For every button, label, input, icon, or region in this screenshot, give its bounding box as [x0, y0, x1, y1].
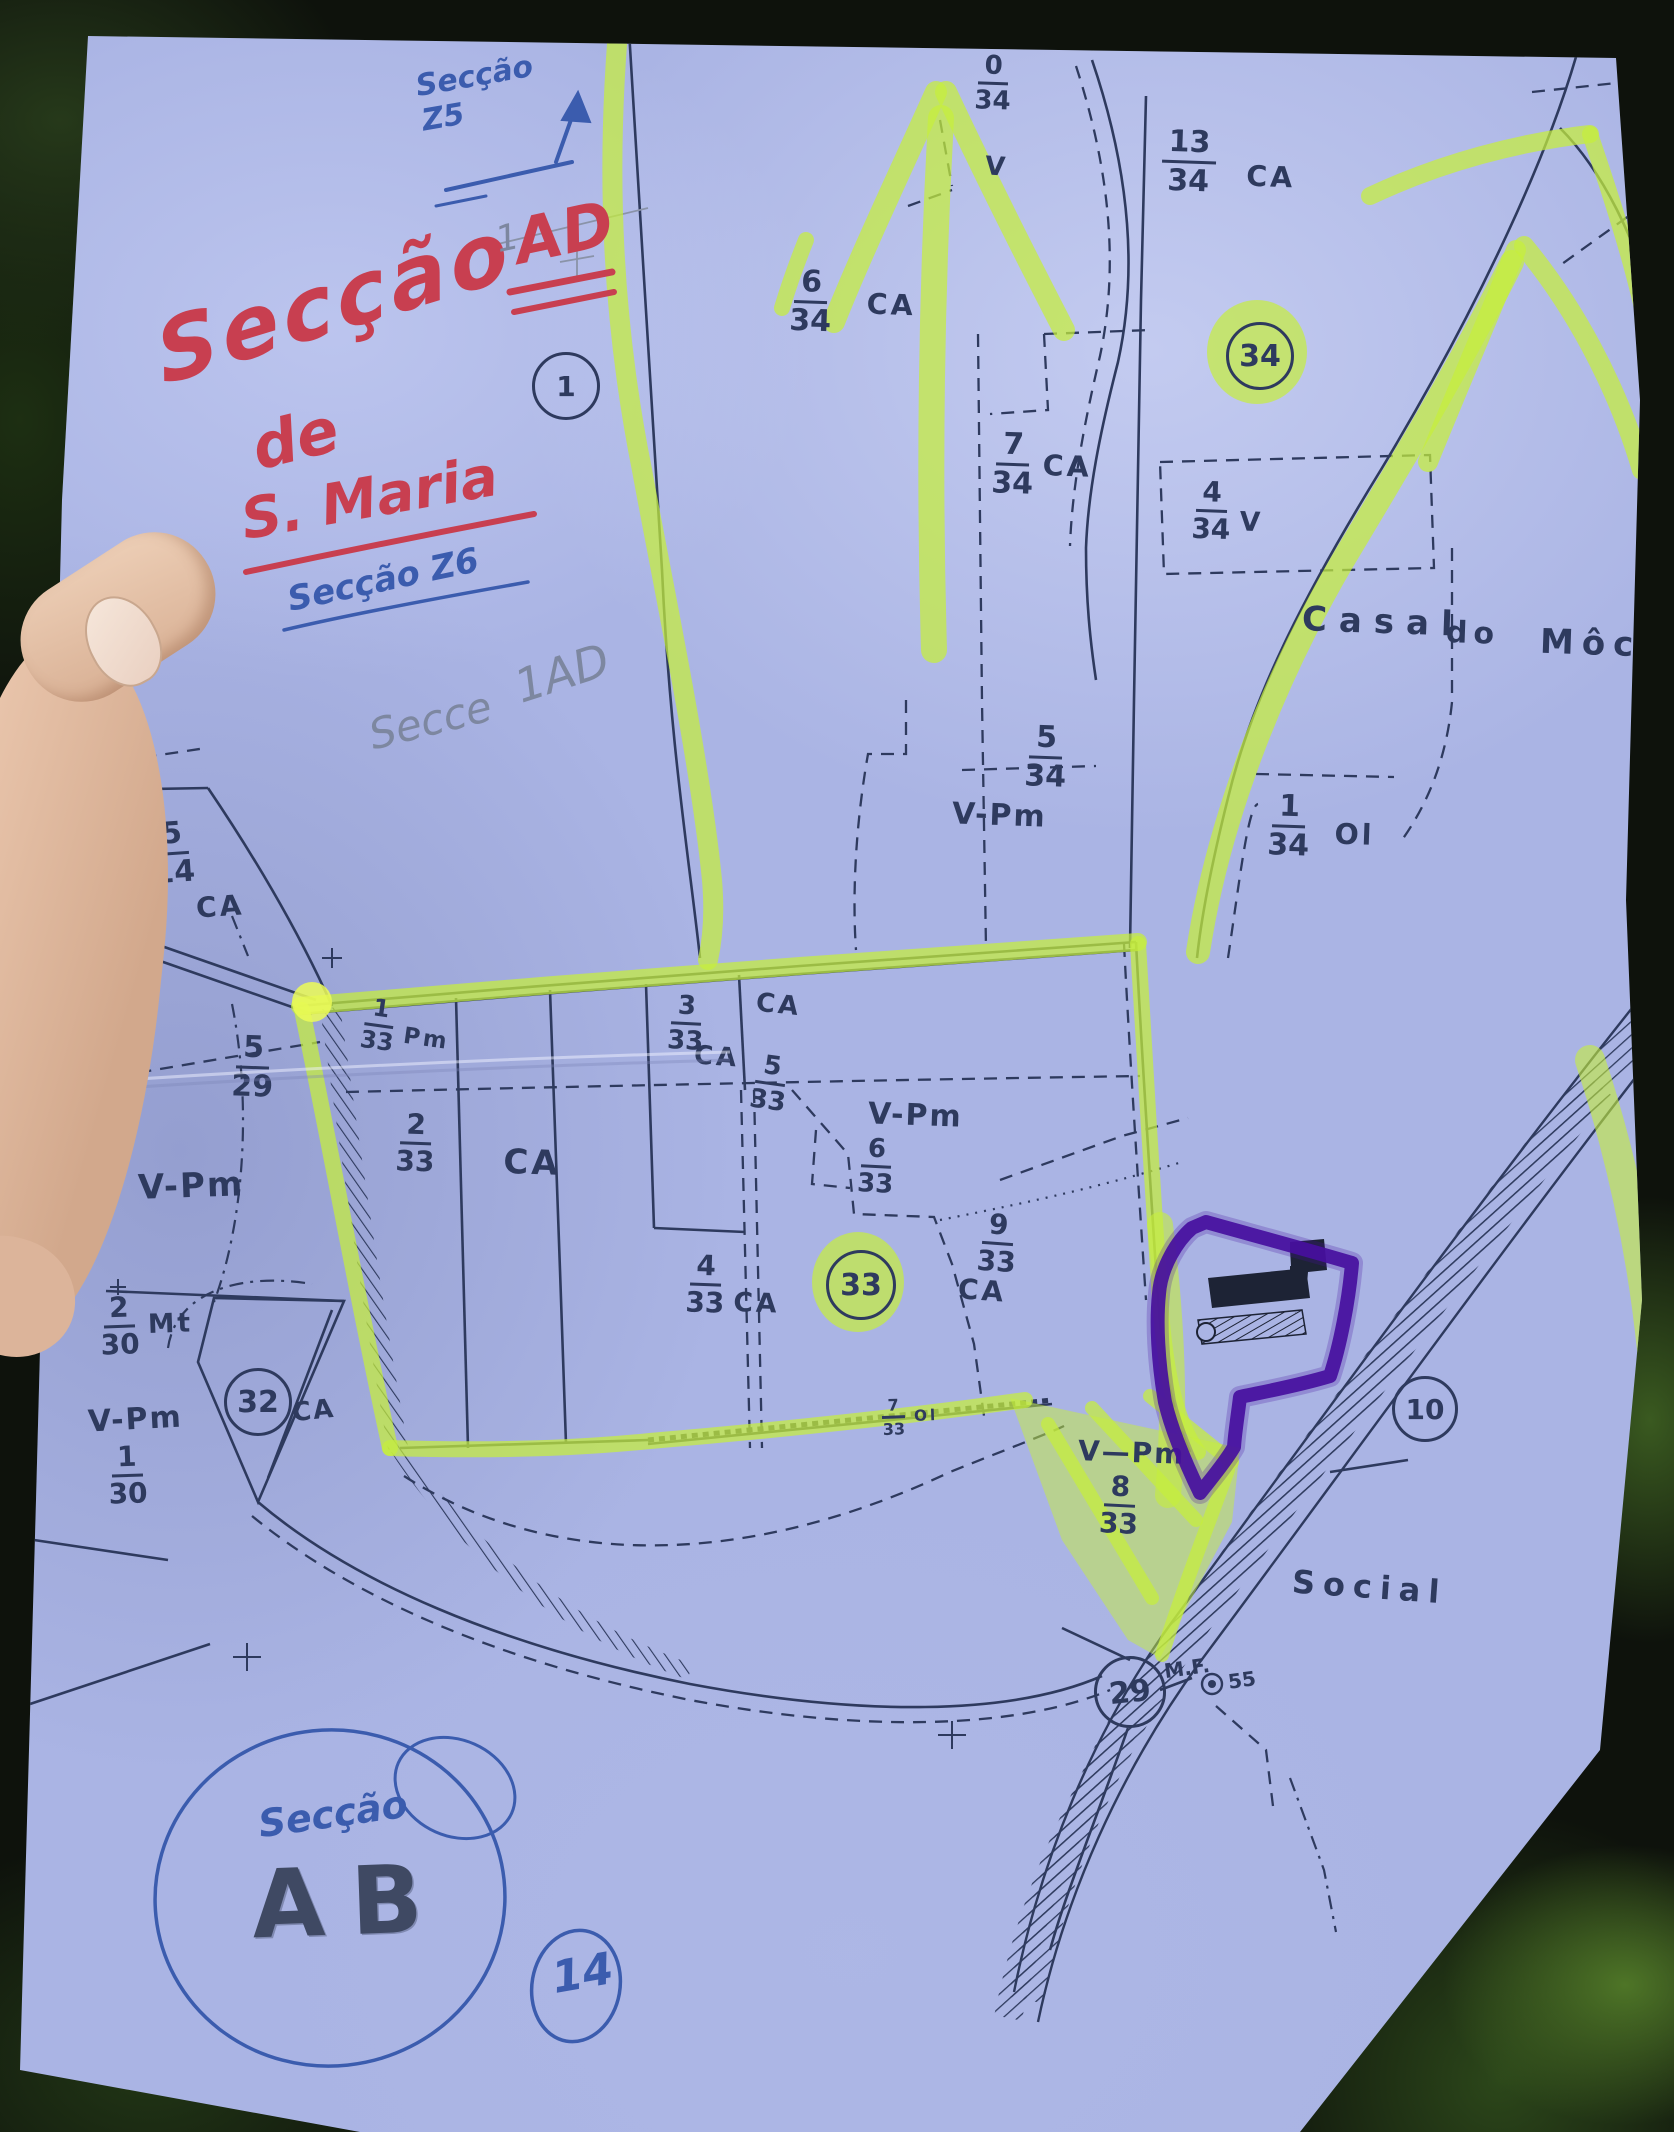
paper-map-sheet: 034 1334 CA 634 CA 734 CA 434 V 534 134 … — [0, 0, 1674, 2132]
pen-overlays — [0, 0, 1674, 2132]
photo-of-cadastral-map: 034 1334 CA 634 CA 734 CA 434 V 534 134 … — [0, 0, 1674, 2132]
red-underlines — [246, 272, 614, 572]
paper-creases — [92, 1052, 730, 1090]
blue-pen-strokes — [138, 92, 629, 2083]
purple-marker-outline — [1158, 1222, 1352, 1493]
